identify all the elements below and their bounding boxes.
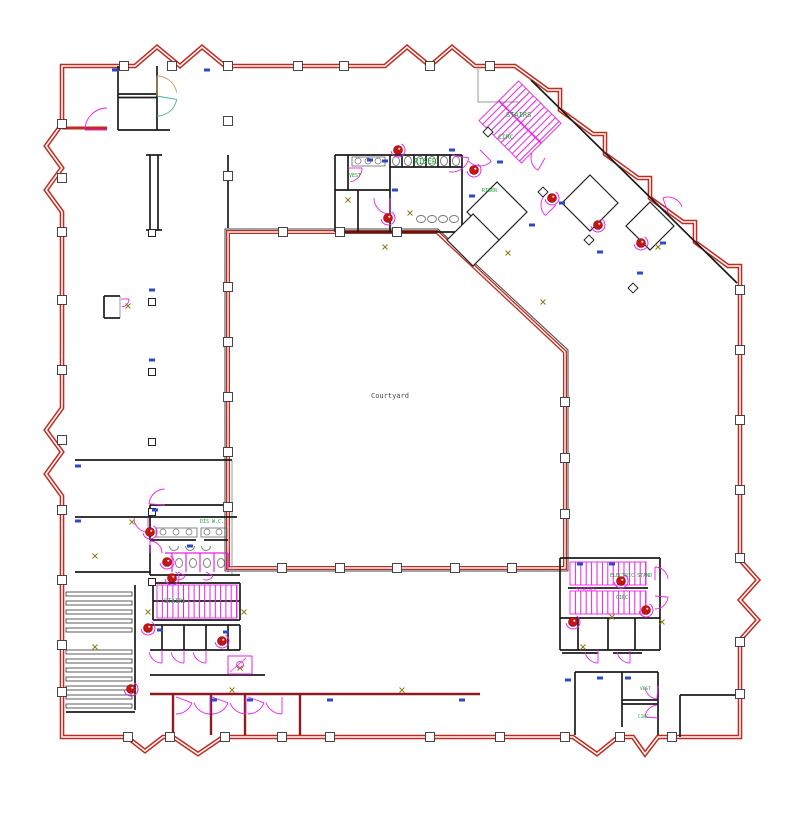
grid-column-rotated <box>584 235 594 245</box>
door-tag-mark <box>112 69 118 72</box>
storage-shelf <box>66 601 132 605</box>
reel-hub <box>621 579 623 581</box>
room-label: RISER <box>414 157 437 166</box>
door <box>194 697 210 714</box>
storage-shelf <box>66 695 132 699</box>
wall-column <box>486 62 495 71</box>
room-label: STAIRS <box>576 587 596 593</box>
room-label: CIRC <box>498 133 514 141</box>
staircase <box>479 81 561 163</box>
wall-column <box>58 366 67 375</box>
wall-column <box>166 733 175 742</box>
reel-drum <box>394 146 403 155</box>
wall-column <box>294 62 303 71</box>
door <box>157 76 177 96</box>
door-swing-arc <box>655 567 668 579</box>
toilet-fixture <box>393 157 400 166</box>
door-tag-mark <box>609 563 615 566</box>
reel-drum <box>218 637 227 646</box>
basin-fixture <box>204 529 210 535</box>
door-tag-mark <box>449 149 455 152</box>
room-label: Courtyard <box>371 392 409 400</box>
wall-column <box>58 436 67 445</box>
door-tag-mark <box>149 289 155 292</box>
door-swing-arc <box>266 703 282 714</box>
door-tag-mark <box>577 563 583 566</box>
room-label: DIS W.C. <box>200 519 224 525</box>
door-tag-mark <box>327 699 333 702</box>
door-swing-arc <box>149 489 164 504</box>
reel-hub <box>398 148 400 150</box>
door-swing-arc <box>176 703 192 714</box>
survey-mark <box>400 688 405 693</box>
door-tag-mark <box>469 195 475 198</box>
wall-column <box>736 486 745 495</box>
survey-mark <box>506 251 511 256</box>
grid-column-rotated <box>483 127 493 137</box>
urinal-fixture <box>202 546 211 551</box>
door-tag-mark <box>459 699 465 702</box>
pantry-counter <box>228 656 252 674</box>
reel-drum <box>168 574 177 583</box>
door-swing-arc <box>194 703 210 714</box>
door-swing-arc <box>212 703 228 714</box>
toilet-fixture <box>453 157 460 166</box>
fire-hose-reel-icon <box>545 192 559 205</box>
reel-drum <box>384 214 393 223</box>
wall-column <box>120 62 129 71</box>
survey-mark <box>130 520 135 525</box>
survey-mark <box>146 610 151 615</box>
reel-drum <box>144 624 153 633</box>
wall-column <box>393 228 402 237</box>
sink-fixture <box>417 216 426 223</box>
grid-column <box>149 369 156 376</box>
grid-column <box>149 299 156 306</box>
wall-column <box>336 228 345 237</box>
survey-mark <box>242 610 247 615</box>
wall-column <box>561 454 570 463</box>
door <box>469 150 492 166</box>
grid-column <box>149 230 156 237</box>
wall-column <box>58 506 67 515</box>
wall-column <box>451 564 460 573</box>
room-label: VEST <box>349 173 361 179</box>
storage-shelf <box>66 677 132 681</box>
wall-column <box>224 393 233 402</box>
door-swing-arc <box>617 652 630 663</box>
door-tag-mark <box>75 520 81 523</box>
reel-hub <box>552 196 554 198</box>
wall-column <box>278 733 287 742</box>
room-label: STAIRS <box>164 598 186 605</box>
reel-drum <box>163 558 172 567</box>
reel-drum <box>470 166 479 175</box>
door-swing-arc <box>171 652 184 663</box>
door-tag-mark <box>211 699 217 702</box>
wall-column <box>496 733 505 742</box>
survey-mark <box>93 645 98 650</box>
wall-column <box>340 62 349 71</box>
reel-drum <box>642 606 651 615</box>
basin-fixture <box>186 529 192 535</box>
door-swing-arc <box>374 198 390 214</box>
door <box>655 596 668 609</box>
door <box>203 572 213 580</box>
fire-hose-reel-icon <box>381 212 395 225</box>
fire-hose-reel-icon <box>639 604 653 617</box>
toilet-fixture <box>405 157 412 166</box>
floorplan-page: CourtyardRISERVESTSTAIRSCIRCRISERDIS W.C… <box>0 0 808 822</box>
door <box>230 697 246 714</box>
door-tag-mark <box>152 509 158 512</box>
wall-column <box>58 641 67 650</box>
door <box>157 96 177 116</box>
door-tag-mark <box>597 677 603 680</box>
grid-column <box>149 439 156 446</box>
reel-drum <box>594 221 603 230</box>
reel-hub <box>641 241 643 243</box>
wall-column <box>58 576 67 585</box>
door-tag-mark <box>149 359 155 362</box>
door-swing-arc <box>585 652 598 663</box>
survey-mark <box>346 198 351 203</box>
door-leaf <box>176 697 192 703</box>
wall-column <box>508 564 517 573</box>
wall-column <box>224 172 233 181</box>
door-tag-mark <box>157 629 163 632</box>
door-tag-mark <box>597 251 603 254</box>
toilet-fixture <box>204 559 211 568</box>
grid-column <box>149 579 156 586</box>
reel-drum <box>548 194 557 203</box>
wall-column <box>736 554 745 563</box>
room-label: STAIRS <box>506 111 531 119</box>
door-tag-mark <box>247 699 253 702</box>
storage-shelf <box>66 704 132 708</box>
wall-column <box>561 510 570 519</box>
reel-hub <box>598 223 600 225</box>
room-label: RISER <box>482 188 498 194</box>
reel-drum <box>146 528 155 537</box>
storage-shelf <box>66 619 132 623</box>
door-leaf <box>538 158 545 170</box>
wall-column <box>58 174 67 183</box>
wall-column <box>736 416 745 425</box>
wall-column <box>224 338 233 347</box>
wall-column <box>736 286 745 295</box>
door <box>149 650 162 663</box>
door-swing-arc <box>230 703 246 714</box>
storage-shelf <box>66 592 132 596</box>
basin-fixture <box>160 529 166 535</box>
reel-hub <box>646 608 648 610</box>
reel-hub <box>222 639 224 641</box>
storage-shelf <box>66 668 132 672</box>
door-swing-arc <box>193 652 206 663</box>
door-leaf <box>157 96 177 99</box>
survey-mark <box>581 645 586 650</box>
door-swing-arc <box>157 99 177 116</box>
toilet-fixture <box>218 559 225 568</box>
door <box>176 697 192 714</box>
storage-shelf <box>66 628 132 632</box>
door <box>149 489 165 505</box>
grid-column-rotated <box>628 283 638 293</box>
wall-column <box>561 398 570 407</box>
reel-drum <box>637 239 646 248</box>
urinal-fixture <box>170 546 179 551</box>
door-tag-mark <box>565 679 571 682</box>
room-label: VEST <box>640 686 651 692</box>
door-tag-mark <box>187 545 193 548</box>
sink-fixture <box>439 216 448 223</box>
door-tag-mark <box>625 677 631 680</box>
survey-mark <box>541 300 546 305</box>
reel-hub <box>573 620 575 622</box>
courtyard-wall <box>228 232 565 568</box>
door-swing-arc <box>655 597 668 609</box>
door-swing-arc <box>248 703 264 714</box>
door-swing-arc <box>157 76 177 93</box>
wall-column <box>736 346 745 355</box>
wall-column <box>426 733 435 742</box>
wall-column <box>58 228 67 237</box>
door-swing-arc <box>150 541 162 553</box>
storage-racks <box>66 592 132 708</box>
wall-column <box>224 283 233 292</box>
wall-column <box>668 733 677 742</box>
door <box>171 650 184 663</box>
storage-shelf <box>66 686 132 690</box>
wall-column <box>561 733 570 742</box>
door-tag-mark <box>367 159 373 162</box>
wall-column <box>58 120 67 129</box>
storage-shelf <box>66 659 132 663</box>
interior-wall-segment <box>531 80 737 283</box>
wall-column <box>224 62 233 71</box>
sink-fixture <box>428 216 437 223</box>
wall-column <box>224 117 233 126</box>
survey-mark <box>93 554 98 559</box>
door-tag-mark <box>75 465 81 468</box>
door-leaf <box>480 150 491 161</box>
door <box>150 541 162 553</box>
fire-hose-reel-icon <box>141 622 155 635</box>
door-swing-arc <box>469 161 492 166</box>
wall-column <box>278 564 287 573</box>
door-leaf <box>655 596 668 597</box>
basin-fixture <box>375 158 381 164</box>
wing-room <box>562 175 618 231</box>
door <box>531 153 545 170</box>
door-swing-arc <box>449 158 469 172</box>
door-swing-arc <box>541 194 545 215</box>
door-tag-mark <box>660 242 666 245</box>
wall-column <box>336 564 345 573</box>
survey-mark <box>656 245 661 250</box>
door-tag-mark <box>392 189 398 192</box>
door-swing-arc <box>203 576 213 580</box>
door-tag-mark <box>529 224 535 227</box>
reel-hub <box>388 216 390 218</box>
wall-column <box>736 638 745 647</box>
reel-hub <box>148 626 150 628</box>
wall-column <box>426 62 435 71</box>
door <box>585 650 598 663</box>
door-tag-mark <box>382 160 388 163</box>
wall-column <box>393 564 402 573</box>
door-tag-mark <box>559 202 565 205</box>
door <box>374 198 390 214</box>
floorplan-svg: CourtyardRISERVESTSTAIRSCIRCRISERDIS W.C… <box>0 0 808 822</box>
door <box>617 650 630 663</box>
wall-column <box>736 690 745 699</box>
wall-column <box>616 733 625 742</box>
door <box>266 697 282 714</box>
reel-hub <box>150 530 152 532</box>
wall-column <box>168 62 177 71</box>
basin-fixture <box>355 158 361 164</box>
reel-hub <box>474 168 476 170</box>
reel-drum <box>127 685 136 694</box>
door-tag-mark <box>223 631 229 634</box>
reel-hub <box>172 576 174 578</box>
survey-mark <box>126 304 131 309</box>
door-tag-mark <box>204 69 210 72</box>
reel-hub <box>167 560 169 562</box>
toilet-fixture <box>441 157 448 166</box>
pantry-worktop <box>228 656 252 674</box>
wall-column <box>221 733 230 742</box>
door-leaf <box>545 205 556 216</box>
survey-mark <box>408 211 413 216</box>
wall-column <box>326 733 335 742</box>
reel-drum <box>569 618 578 627</box>
room-label: ELECTRIC STAND <box>610 573 652 579</box>
staircase <box>570 591 646 614</box>
door-swing-arc <box>531 153 538 170</box>
toilet-fixture <box>190 559 197 568</box>
door-swing-arc <box>149 652 162 663</box>
wall-column <box>224 448 233 457</box>
survey-mark <box>230 688 235 693</box>
fire-hose-reel-icon <box>215 635 229 648</box>
door-tag-mark <box>637 272 643 275</box>
room-label: CIRC <box>638 714 649 720</box>
wall-column <box>58 296 67 305</box>
basin-fixture <box>216 529 222 535</box>
fire-hose-reel-icon <box>124 683 138 696</box>
grid-column-rotated <box>538 187 548 197</box>
reel-hub <box>131 687 133 689</box>
basin-fixture <box>173 529 179 535</box>
interior-wall-dark-red <box>150 694 480 735</box>
door-tag-mark <box>497 161 503 164</box>
room-label: CIRC <box>616 595 628 601</box>
door <box>193 650 206 663</box>
door <box>655 567 668 580</box>
wall-column <box>224 503 233 512</box>
storage-shelf <box>66 650 132 654</box>
wall-column <box>279 228 288 237</box>
wall-column <box>58 688 67 697</box>
storage-shelf <box>66 610 132 614</box>
sink-fixture <box>450 216 459 223</box>
toilet-fixture <box>176 559 183 568</box>
wall-column <box>124 733 133 742</box>
